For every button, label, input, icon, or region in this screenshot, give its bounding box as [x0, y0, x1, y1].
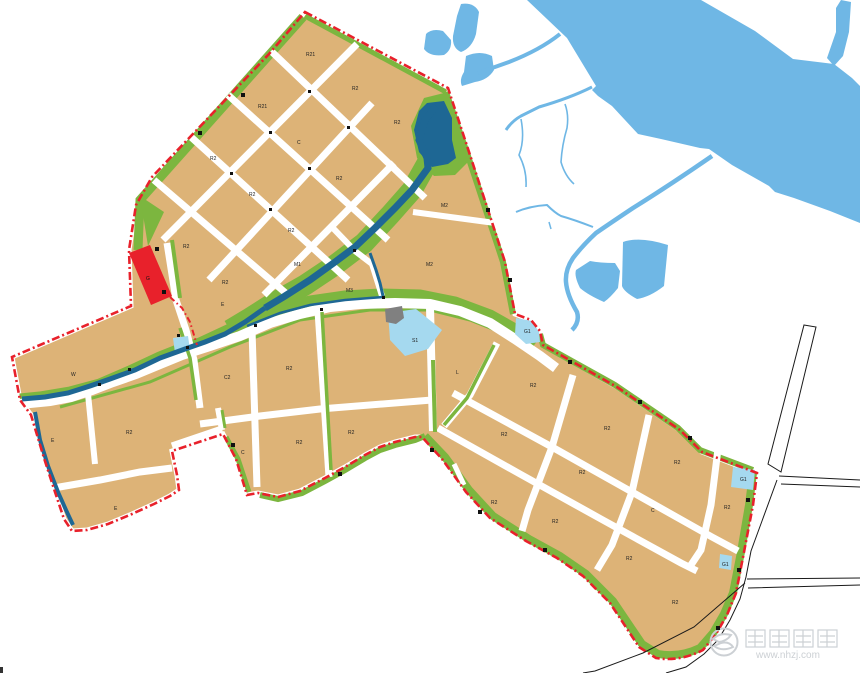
svg-text:R2: R2 — [530, 383, 537, 389]
svg-text:R2: R2 — [674, 460, 681, 466]
svg-text:R2: R2 — [672, 600, 679, 606]
svg-text:R2: R2 — [126, 430, 133, 436]
svg-text:R2: R2 — [348, 430, 355, 436]
svg-text:R2: R2 — [626, 556, 633, 562]
svg-text:G1: G1 — [722, 562, 729, 568]
svg-text:R2: R2 — [222, 280, 229, 286]
svg-text:R2: R2 — [579, 470, 586, 476]
svg-text:C: C — [241, 450, 245, 456]
svg-text:R2: R2 — [286, 366, 293, 372]
svg-text:R2: R2 — [552, 519, 559, 525]
svg-text:R2: R2 — [336, 176, 343, 182]
svg-text:C: C — [651, 508, 655, 514]
svg-text:R21: R21 — [258, 104, 267, 110]
svg-text:R2: R2 — [183, 244, 190, 250]
svg-text:M1: M1 — [294, 262, 301, 268]
svg-text:C: C — [297, 140, 301, 146]
svg-text:R2: R2 — [249, 192, 256, 198]
svg-text:M3: M3 — [346, 288, 353, 294]
svg-text:R2: R2 — [210, 156, 217, 162]
svg-text:R2: R2 — [501, 432, 508, 438]
svg-text:R2: R2 — [604, 426, 611, 432]
svg-text:S1: S1 — [412, 338, 418, 344]
svg-text:www.nhzj.com: www.nhzj.com — [755, 650, 820, 661]
svg-text:L: L — [456, 370, 459, 376]
svg-text:R2: R2 — [352, 86, 359, 92]
svg-text:R2: R2 — [724, 505, 731, 511]
svg-text:R21: R21 — [306, 52, 315, 58]
svg-text:R2: R2 — [296, 440, 303, 446]
svg-text:W: W — [71, 372, 76, 378]
svg-text:G1: G1 — [740, 477, 747, 483]
svg-text:M2: M2 — [441, 203, 448, 209]
svg-text:R2: R2 — [491, 500, 498, 506]
svg-text:C2: C2 — [224, 375, 231, 381]
svg-text:R2: R2 — [394, 120, 401, 126]
svg-text:M2: M2 — [426, 262, 433, 268]
svg-text:G: G — [146, 276, 150, 282]
svg-text:G1: G1 — [524, 329, 531, 335]
svg-text:R2: R2 — [288, 228, 295, 234]
